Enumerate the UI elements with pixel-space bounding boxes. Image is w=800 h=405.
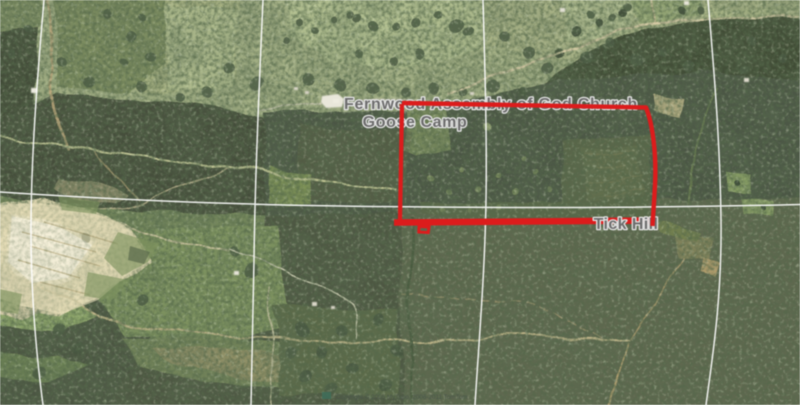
svg-text:Goose Camp: Goose Camp (363, 114, 468, 131)
svg-text:Tick Hill: Tick Hill (594, 216, 659, 233)
svg-text:Copyright:© 2006 MyTopo, 2006-: Copyright:© 2006 MyTopo, 2006-2011 TomTo… (336, 393, 467, 401)
